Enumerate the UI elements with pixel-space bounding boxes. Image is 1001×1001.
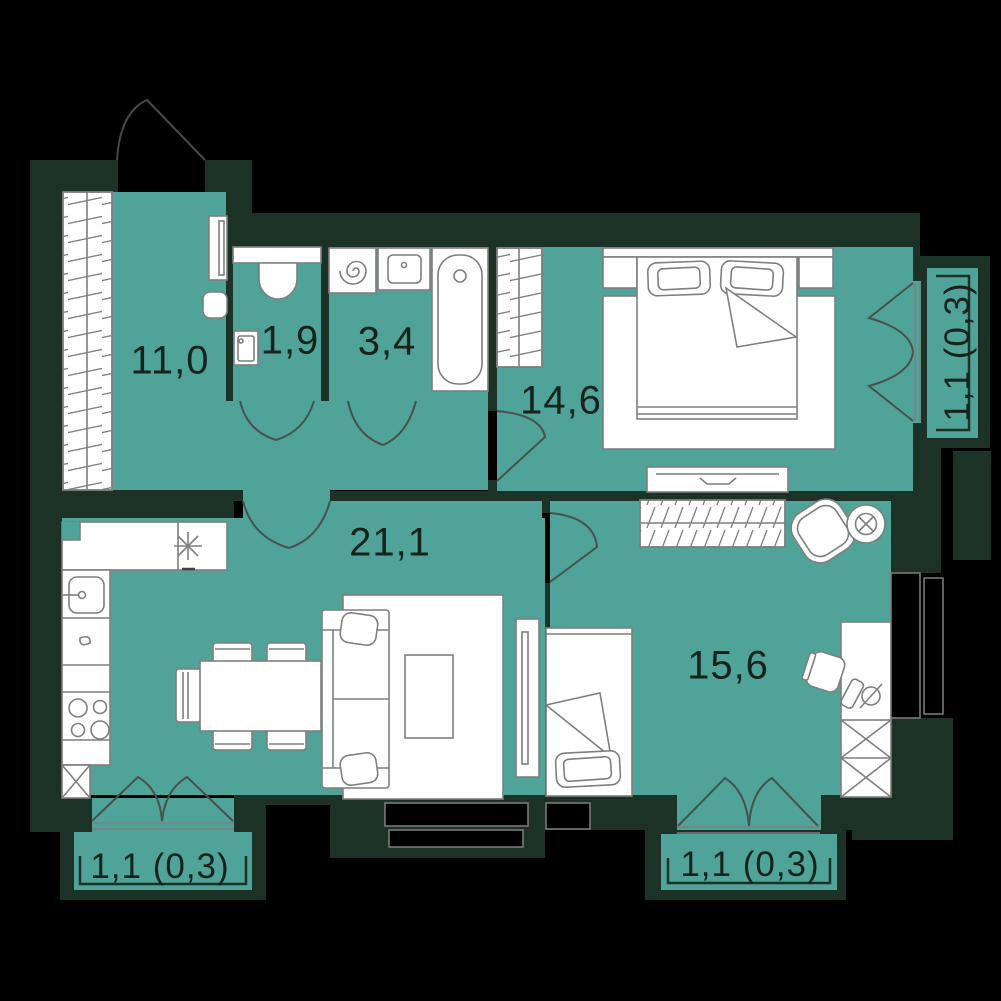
corridor-floor (226, 401, 488, 490)
tv-icon (516, 619, 539, 777)
kitchen-cabinet-x-icon (62, 765, 90, 798)
nightstand-left-icon (603, 257, 637, 288)
floor-plan-drawing (0, 0, 1001, 1001)
pouf-icon (203, 292, 227, 318)
washing-machine-icon (329, 248, 376, 293)
balcony-br-floor (661, 834, 837, 890)
toilet-cistern-icon (233, 247, 321, 263)
dining-table-icon (200, 661, 321, 731)
mirror-icon (209, 216, 227, 280)
balcony-r-floor (927, 268, 978, 438)
floor-lamp-icon (847, 505, 885, 543)
floor-plan: 11,0 1,9 3,4 14,6 21,1 15,6 1,1 (0,3) 1,… (0, 0, 1001, 1001)
sofa-icon (322, 610, 389, 788)
hall-wardrobe-icon (63, 192, 112, 490)
double-bed-icon (637, 257, 797, 419)
shelf-icon (640, 500, 785, 547)
coffee-table-icon (405, 655, 453, 738)
window-bedroom2-bottom (546, 803, 590, 829)
entrance-door-icon (117, 100, 205, 160)
cutting-icon (80, 637, 90, 645)
toilet-icon (259, 263, 297, 299)
balcony-bl-floor (74, 832, 252, 890)
bedroom-wardrobe-icon (497, 248, 542, 367)
wardrobe-x-icon (841, 720, 891, 797)
wc-sink-icon (234, 331, 258, 365)
window-bedroom2-right (891, 573, 920, 718)
window-living (385, 803, 528, 826)
bed-headboard (603, 248, 833, 257)
single-bed-icon (546, 628, 632, 796)
window-living-2 (389, 830, 523, 847)
bath-sink-icon (378, 248, 430, 290)
tv-console-icon (647, 467, 788, 492)
nightstand-right-icon (799, 257, 833, 288)
window-bedroom2-right-2 (924, 578, 943, 714)
bathtub-icon (432, 248, 488, 391)
